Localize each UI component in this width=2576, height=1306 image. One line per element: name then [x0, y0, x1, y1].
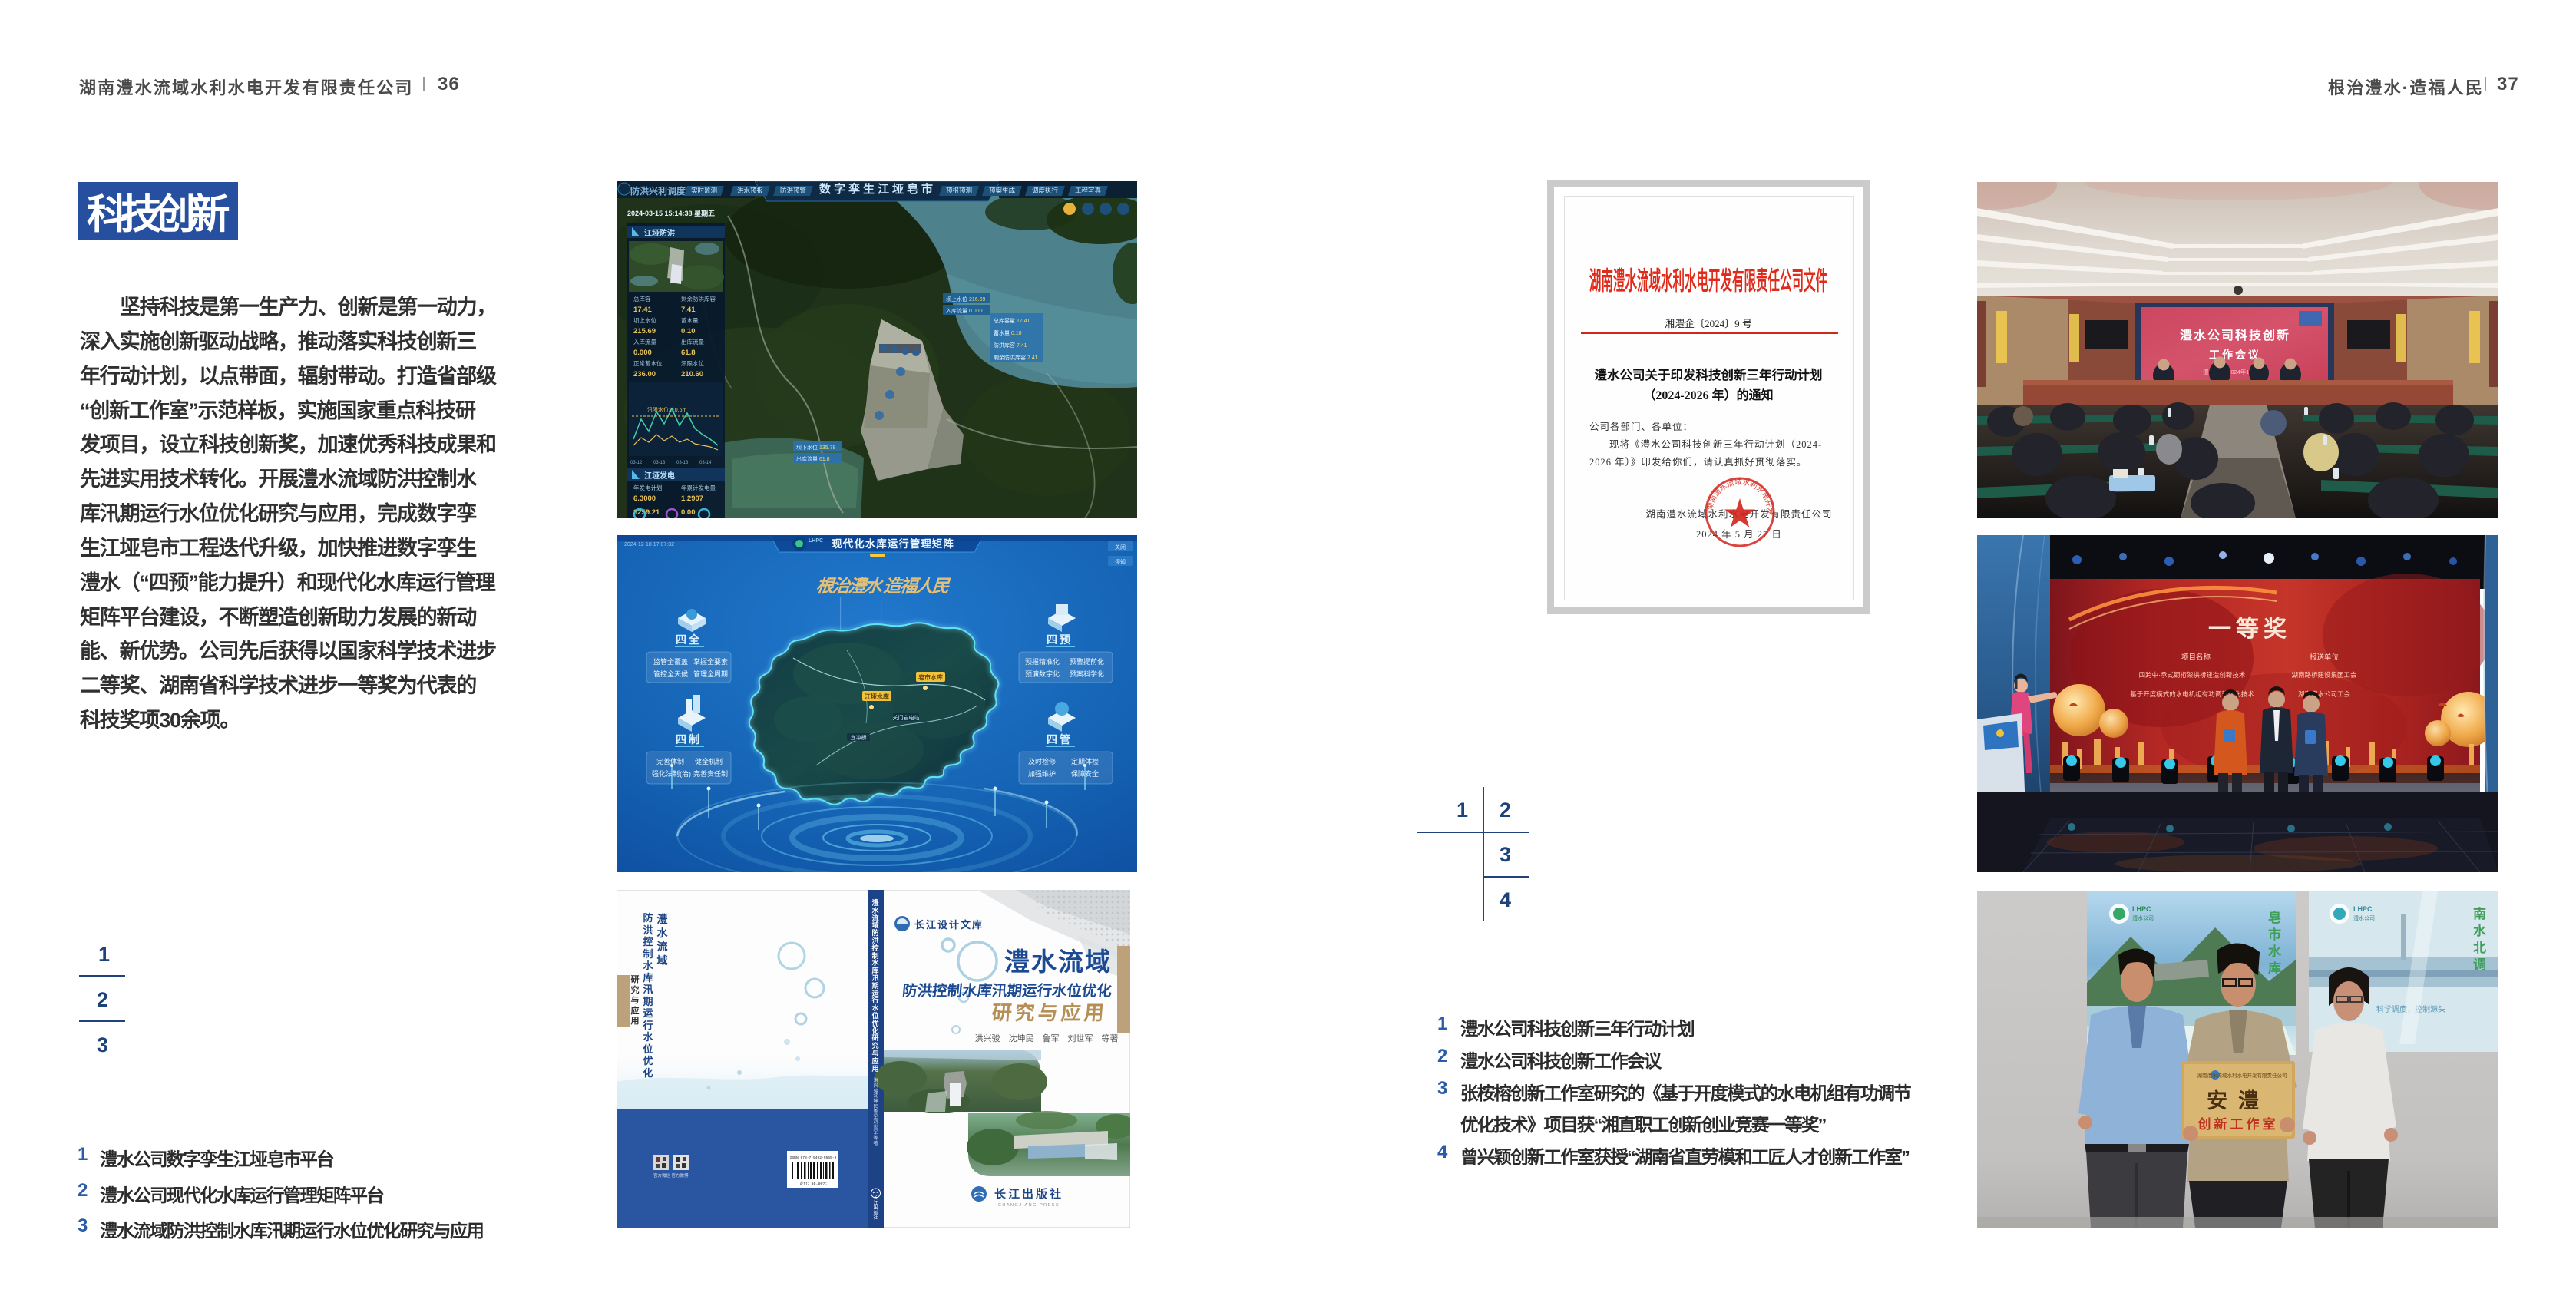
svg-text:创新工作室: 创新工作室 — [2197, 1116, 2279, 1132]
svg-text:须知: 须知 — [1115, 558, 1126, 565]
svg-text:0.000: 0.000 — [633, 349, 652, 357]
svg-text:03-12: 03-12 — [630, 461, 643, 465]
svg-text:年累计发电量: 年累计发电量 — [681, 484, 716, 491]
svg-text:入库流量 0.000: 入库流量 0.000 — [946, 307, 983, 314]
svg-text:项目名称: 项目名称 — [2181, 653, 2211, 662]
svg-text:健全机制: 健全机制 — [695, 757, 723, 765]
svg-text:长江出版社: 长江出版社 — [994, 1187, 1063, 1201]
svg-text:调度执行: 调度执行 — [1032, 187, 1059, 194]
svg-text:四预: 四预 — [1047, 633, 1073, 646]
svg-text:03-14: 03-14 — [699, 461, 712, 465]
svg-text:正常蓄水位: 正常蓄水位 — [633, 359, 663, 367]
svg-text:安澧: 安澧 — [2207, 1089, 2270, 1113]
svg-text:2024-12-18 17:07:32: 2024-12-18 17:07:32 — [624, 542, 674, 547]
svg-text:总库容: 总库容 — [633, 295, 651, 303]
svg-text:236.00: 236.00 — [633, 370, 656, 379]
svg-text:0.00: 0.00 — [681, 508, 696, 517]
svg-text:预案科学化: 预案科学化 — [1070, 670, 1104, 678]
svg-text:完善体制: 完善体制 — [656, 757, 684, 765]
svg-text:掌握全要素: 掌握全要素 — [693, 657, 728, 666]
svg-text:完善责任制: 完善责任制 — [693, 769, 728, 778]
svg-text:210.60: 210.60 — [681, 370, 703, 379]
svg-text:汛限水位: 汛限水位 — [681, 359, 704, 367]
svg-text:监管全覆盖: 监管全覆盖 — [653, 657, 688, 666]
svg-text:管理全周期: 管理全周期 — [693, 670, 728, 678]
svg-text:蓄水量 0.10: 蓄水量 0.10 — [994, 329, 1022, 336]
svg-text:17.41: 17.41 — [633, 306, 652, 314]
svg-text:蓄水量: 蓄水量 — [681, 316, 699, 324]
svg-text:ISBN 978-7-5492-9565-9: ISBN 978-7-5492-9565-9 — [790, 1156, 837, 1160]
svg-text:根治澧水 造福人民: 根治澧水 造福人民 — [815, 576, 952, 596]
svg-text:实时监测: 实时监测 — [691, 187, 717, 194]
svg-text:预演数字化: 预演数字化 — [1025, 670, 1060, 678]
svg-text:剩余防洪库容 7.41: 剩余防洪库容 7.41 — [994, 354, 1038, 361]
svg-text:湖南澧水流域水利水电开发有限责任公司: 湖南澧水流域水利水电开发有限责任公司 — [2197, 1072, 2287, 1079]
svg-text:四跨中·承式钢桁架拱桥建造创新技术: 四跨中·承式钢桁架拱桥建造创新技术 — [2139, 671, 2246, 679]
svg-text:澧水公司: 澧水公司 — [2132, 914, 2154, 921]
svg-text:江垭防洪: 江垭防洪 — [644, 228, 675, 238]
svg-text:汛限水位210.6m: 汛限水位210.6m — [647, 406, 687, 413]
svg-text:研究与应用: 研究与应用 — [991, 1001, 1109, 1024]
svg-text:LHPC: LHPC — [809, 538, 823, 544]
svg-text:关闭: 关闭 — [1115, 544, 1126, 551]
svg-text:2024-03-15 15:14:38 星期五: 2024-03-15 15:14:38 星期五 — [627, 209, 715, 217]
svg-text:现代化水库运行管理矩阵: 现代化水库运行管理矩阵 — [832, 537, 954, 550]
svg-text:定价：86.00元: 定价：86.00元 — [799, 1181, 826, 1186]
svg-text:预案生成: 预案生成 — [989, 187, 1016, 194]
svg-text:报送单位: 报送单位 — [2310, 653, 2340, 662]
svg-text:年发电计划: 年发电计划 — [633, 484, 663, 491]
svg-text:03-13: 03-13 — [676, 461, 689, 465]
svg-text:澧水公司科技创新: 澧水公司科技创新 — [2180, 328, 2290, 342]
svg-text:洪水预报: 洪水预报 — [737, 187, 764, 194]
svg-text:预警提前化: 预警提前化 — [1070, 657, 1104, 666]
svg-text:剩余防洪库容: 剩余防洪库容 — [681, 295, 716, 303]
svg-text:预报精准化: 预报精准化 — [1025, 657, 1060, 666]
svg-text:LHPC: LHPC — [2132, 905, 2151, 913]
svg-text:数字孪生江垭皂市: 数字孪生江垭皂市 — [819, 182, 936, 196]
svg-text:CHANGJIANG PRESS: CHANGJIANG PRESS — [998, 1203, 1060, 1208]
svg-text:215.69: 215.69 — [633, 327, 656, 336]
svg-text:加强维护: 加强维护 — [1028, 769, 1056, 778]
svg-text:出库流量: 出库流量 — [681, 338, 704, 346]
svg-text:1.2907: 1.2907 — [681, 494, 703, 503]
svg-text:出库流量 61.8: 出库流量 61.8 — [796, 455, 830, 462]
svg-text:长江设计文库: 长江设计文库 — [914, 919, 984, 931]
svg-text:四管: 四管 — [1047, 733, 1073, 746]
svg-text:LHPC: LHPC — [2353, 905, 2373, 913]
svg-text:及时检修: 及时检修 — [1028, 757, 1056, 765]
svg-text:总库容量 17.41: 总库容量 17.41 — [994, 317, 1030, 324]
svg-text:6.3000: 6.3000 — [633, 494, 656, 503]
svg-text:官方微信 官方微博: 官方微信 官方微博 — [653, 1172, 689, 1179]
svg-text:0.10: 0.10 — [681, 327, 696, 336]
svg-text:洪兴骏 沈坤民 鲁军 刘世军 等著: 洪兴骏 沈坤民 鲁军 刘世军 等著 — [975, 1033, 1119, 1043]
svg-text:皂市水库: 皂市水库 — [918, 673, 943, 681]
svg-text:防洪控制水库汛期运行水位优化: 防洪控制水库汛期运行水位优化 — [901, 982, 1113, 1000]
svg-text:管控全天候: 管控全天候 — [653, 670, 688, 678]
svg-text:江垭水库: 江垭水库 — [865, 693, 889, 700]
svg-text:澧水公司: 澧水公司 — [2353, 914, 2375, 921]
svg-text:入库流量: 入库流量 — [633, 338, 656, 346]
svg-text:防洪库容 7.41: 防洪库容 7.41 — [994, 342, 1027, 349]
svg-text:一等奖: 一等奖 — [2208, 616, 2291, 642]
svg-text:7.41: 7.41 — [681, 306, 696, 314]
svg-text:江垭发电: 江垭发电 — [644, 471, 675, 481]
svg-text:工程写真: 工程写真 — [1075, 187, 1102, 194]
svg-text:湖南路桥建设集团工会: 湖南路桥建设集团工会 — [2291, 671, 2357, 679]
svg-text:坝上水位: 坝上水位 — [633, 316, 656, 324]
svg-text:防洪预警: 防洪预警 — [780, 187, 807, 194]
svg-text:防洪兴利调度: 防洪兴利调度 — [630, 185, 686, 197]
svg-text:宜冲桥: 宜冲桥 — [851, 734, 867, 741]
svg-text:关门岩电站: 关门岩电站 — [893, 714, 920, 721]
svg-text:预报预测: 预报预测 — [946, 187, 972, 194]
svg-text:四制: 四制 — [676, 733, 702, 746]
svg-text:61.8: 61.8 — [681, 349, 696, 357]
svg-text:坝上水位 216.69: 坝上水位 216.69 — [946, 296, 985, 303]
svg-text:四全: 四全 — [676, 633, 702, 646]
svg-text:03-13: 03-13 — [653, 461, 666, 465]
svg-text:坝下水位 135.78: 坝下水位 135.78 — [796, 444, 835, 451]
svg-text:澧水流域: 澧水流域 — [1004, 947, 1112, 976]
